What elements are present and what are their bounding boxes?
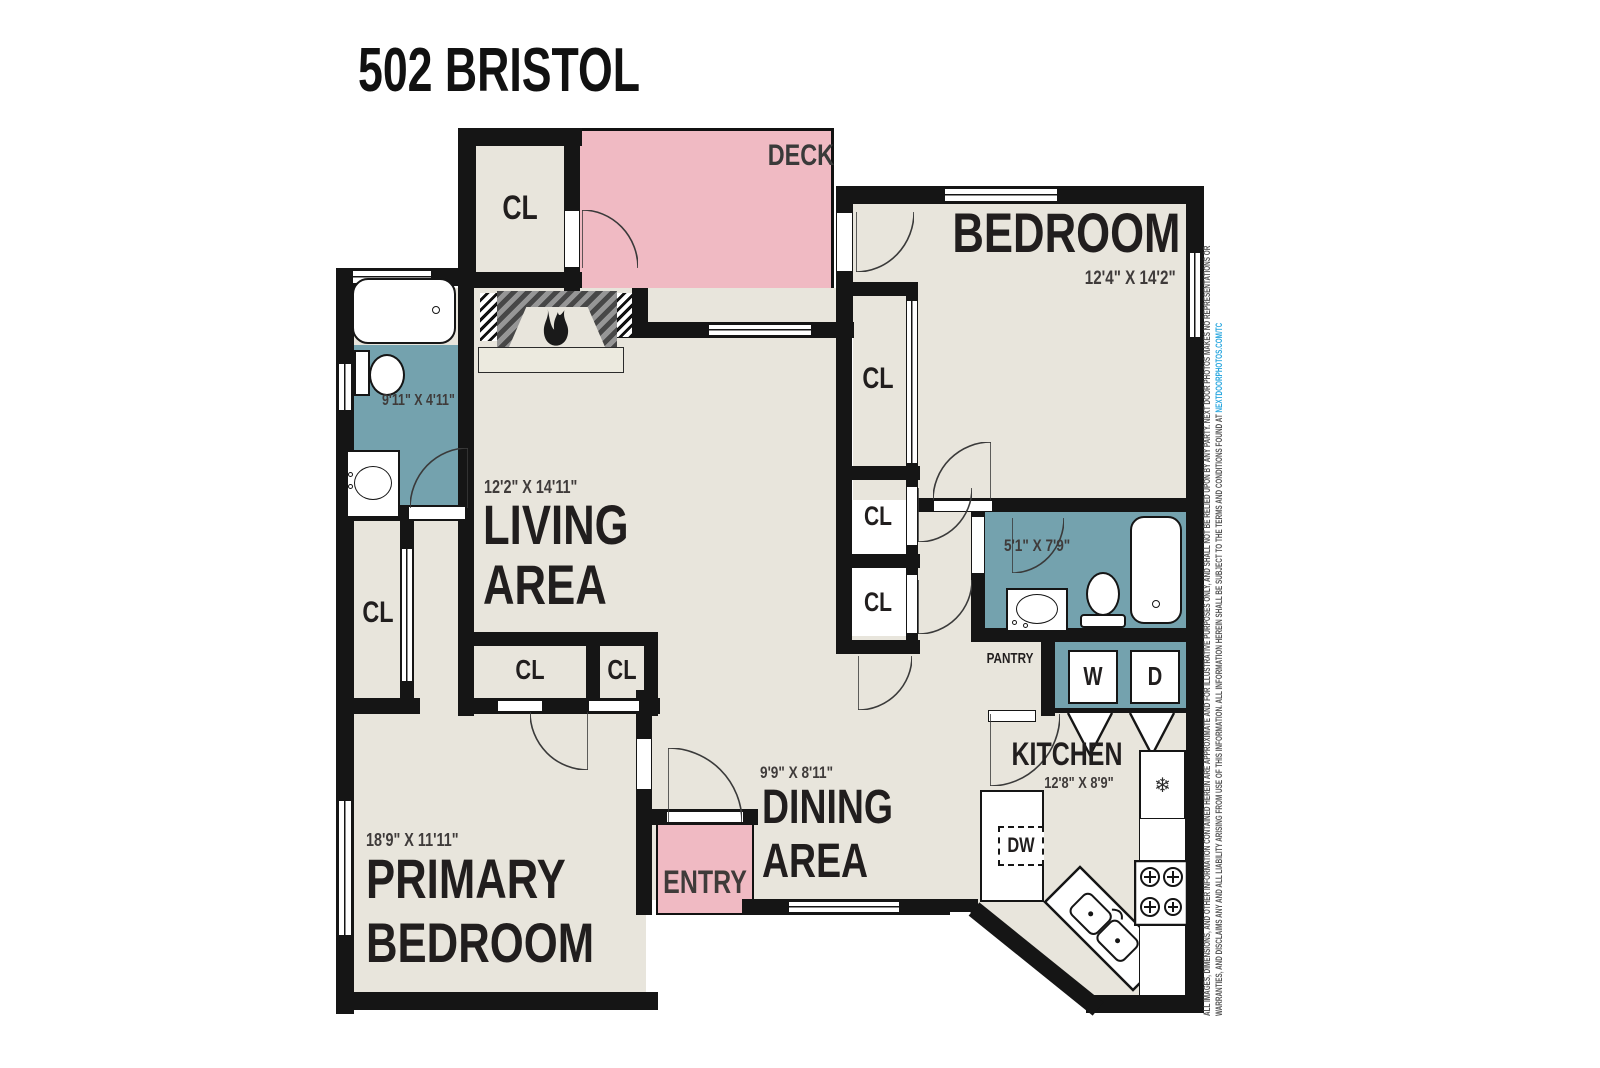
- door-arc: [858, 656, 912, 710]
- door-arc: [582, 210, 638, 268]
- wall-segment: [836, 640, 920, 654]
- closet-label-small-1: CL: [856, 502, 900, 530]
- kitchen-dims: 12'8" X 8'9": [1032, 776, 1126, 792]
- door-arc: [856, 212, 914, 272]
- dishwasher-label: DW: [1003, 826, 1039, 866]
- disclaimer-line-1: ALL IMAGES, DIMENSIONS, AND OTHER INFORM…: [1202, 279, 1214, 1016]
- bathtub-drain: [1152, 600, 1160, 608]
- bath-second-dims: 5'1" X 7'9": [1004, 536, 1070, 556]
- wall-segment: [836, 554, 920, 568]
- fireplace-side-hatch: [617, 293, 632, 337]
- window: [1189, 252, 1201, 338]
- fireplace-side-hatch: [480, 293, 497, 341]
- disclaimer-line-2: WARRANTIES, AND DISCLAIMS ANY AND ALL LI…: [1214, 279, 1226, 1016]
- sink-basin: [1016, 594, 1058, 624]
- wall-segment: [586, 646, 600, 702]
- wall-segment: [336, 698, 420, 714]
- bath-main-dims: 9'11" X 4'11": [382, 392, 455, 410]
- fireplace-hearth: [478, 347, 624, 373]
- primary-label-1: PRIMARY: [366, 854, 566, 904]
- disclaimer: ALL IMAGES, DIMENSIONS, AND OTHER INFORM…: [1202, 276, 1227, 1016]
- wall-segment: [564, 132, 580, 210]
- window: [338, 363, 352, 411]
- dining-dims: 9'9" X 8'11": [760, 763, 833, 783]
- bathtub-drain: [432, 306, 440, 314]
- door-opening: [588, 700, 640, 712]
- pantry-label: PANTRY: [987, 650, 1034, 668]
- closet-label-tall: CL: [856, 362, 900, 394]
- toilet-base: [1080, 614, 1126, 628]
- closet-label-small-2: CL: [856, 588, 900, 616]
- flame-icon: [542, 308, 570, 346]
- disclaimer-link: NEXTDOORPHOTOS.COM/TC: [1214, 323, 1225, 413]
- wall-segment: [836, 204, 853, 212]
- wall-segment: [836, 466, 920, 480]
- door-opening: [497, 700, 543, 712]
- deck-label: DECK: [768, 142, 834, 169]
- door-arc: [530, 712, 588, 770]
- wall-segment: [632, 288, 648, 328]
- living-label-1: LIVING: [483, 500, 629, 550]
- primary-label-2: BEDROOM: [366, 918, 594, 968]
- wall-segment: [836, 282, 918, 296]
- door-arc: [668, 748, 742, 822]
- bedroom-dims: 12'4" X 14'2": [1085, 268, 1176, 290]
- entry-label: ENTRY: [667, 864, 743, 900]
- faucet-icon: [1023, 623, 1028, 628]
- dining-label-2: AREA: [762, 840, 868, 883]
- sink-basin: [354, 466, 392, 500]
- closet-label-left: CL: [359, 596, 396, 628]
- toilet-tank: [354, 350, 370, 396]
- door-arc: [918, 580, 972, 634]
- toilet-bowl: [1086, 572, 1120, 616]
- window: [788, 901, 900, 913]
- wall-segment: [458, 632, 658, 646]
- bedroom-label: BEDROOM: [952, 208, 1180, 258]
- door-opening: [636, 738, 652, 790]
- wall-segment: [836, 336, 852, 654]
- dryer-label: D: [1136, 650, 1175, 704]
- sliding-door: [401, 548, 413, 682]
- door-opening: [564, 210, 580, 268]
- wall-segment: [458, 128, 476, 288]
- closet-label-row-2: CL: [603, 655, 640, 685]
- window: [708, 324, 812, 336]
- window: [338, 800, 352, 936]
- door-opening: [906, 486, 918, 546]
- closet-label-top: CL: [486, 190, 555, 226]
- wall-segment: [636, 810, 652, 915]
- dining-label-1: DINING: [762, 786, 893, 829]
- door-arc: [410, 448, 468, 508]
- door-opening: [971, 516, 985, 574]
- snowflake-icon: ❄: [1139, 750, 1186, 820]
- page-title: 502 BRISTOL: [358, 40, 640, 102]
- bathtub: [352, 278, 456, 344]
- door-opening: [408, 506, 466, 520]
- washer-label: W: [1074, 650, 1113, 704]
- wall-segment: [336, 518, 354, 1014]
- door-arc: [918, 488, 972, 542]
- living-label-2: AREA: [483, 560, 607, 610]
- faucet-icon: [348, 472, 353, 477]
- kitchen-label: KITCHEN: [1012, 738, 1123, 770]
- wall-segment: [336, 992, 658, 1010]
- door-opening: [836, 212, 853, 272]
- floor-plan: 502 BRISTOL: [0, 0, 1600, 1068]
- window: [944, 188, 1058, 202]
- wall-segment: [1041, 642, 1055, 716]
- door-opening: [906, 574, 918, 634]
- closet-label-row-1: CL: [486, 655, 573, 685]
- stove: [1134, 860, 1188, 926]
- sliding-door: [906, 300, 918, 464]
- disclaimer-line-2-text: WARRANTIES, AND DISCLAIMS ANY AND ALL LI…: [1214, 412, 1225, 1016]
- faucet-icon: [348, 484, 353, 489]
- toilet-bowl: [369, 354, 405, 396]
- faucet-icon: [1012, 620, 1017, 625]
